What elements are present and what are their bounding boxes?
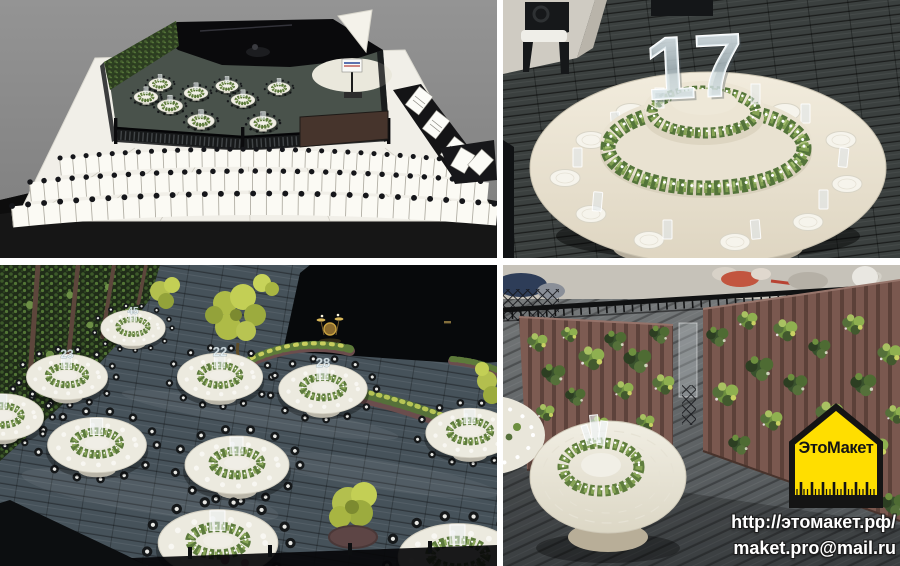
lattice-fragment: [682, 385, 696, 425]
table-number: 45: [127, 306, 139, 317]
contact-info: http://этомакет.рф/ maket.pro@mail.ru: [731, 509, 896, 561]
foreground-edge: [503, 140, 514, 258]
chair-back: [651, 0, 713, 16]
logo-wordmark: ЭтоМакет: [793, 439, 879, 458]
photo-banquet-aerial: 45 23 22 28: [0, 265, 497, 566]
centerpiece-number: 17: [643, 15, 746, 119]
photo-table-17-closeup: 17 17: [503, 0, 900, 258]
round-table-model: [530, 415, 686, 563]
website-url: http://этомакет.рф/: [731, 509, 896, 535]
table-number: 28: [316, 355, 330, 370]
logo-text-maket: Макет: [827, 439, 873, 457]
table-number: 22: [213, 344, 227, 359]
photo-collage: 17 17: [0, 0, 900, 566]
photo-model-overview: [0, 0, 497, 258]
logo-text-eto: Это: [799, 439, 827, 457]
table-number: 23: [60, 347, 74, 361]
photo-greenwall-closeup: ЭтоМакет http://этомакет.рф/ maket.pro@m…: [503, 265, 900, 566]
email-address: maket.pro@mail.ru: [731, 535, 896, 561]
etomaket-logo: ЭтоМакет: [789, 403, 883, 509]
seating-chart: [12, 149, 497, 217]
